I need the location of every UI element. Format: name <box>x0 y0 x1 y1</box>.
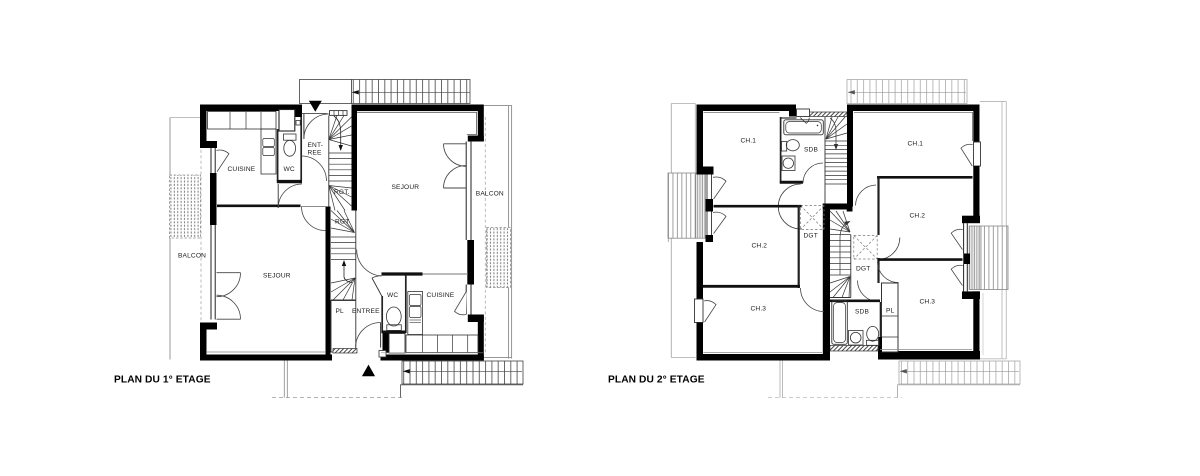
svg-text:ENT-: ENT- <box>308 142 324 149</box>
svg-text:WC: WC <box>284 166 295 173</box>
svg-text:WC: WC <box>387 292 398 299</box>
svg-text:SEJOUR: SEJOUR <box>263 272 291 279</box>
svg-text:BALCON: BALCON <box>476 190 504 197</box>
svg-text:CH.1: CH.1 <box>908 140 924 147</box>
svg-text:PLAN DU 2° ETAGE: PLAN DU 2° ETAGE <box>608 375 705 386</box>
svg-text:CH.2: CH.2 <box>910 212 926 219</box>
svg-text:SDB: SDB <box>855 308 869 315</box>
svg-text:PL: PL <box>886 307 895 314</box>
svg-text:BALCON: BALCON <box>178 252 206 259</box>
svg-text:DGT: DGT <box>804 232 818 239</box>
svg-text:RGT: RGT <box>335 219 349 226</box>
svg-text:SEJOUR: SEJOUR <box>392 184 420 191</box>
svg-text:REE: REE <box>308 150 322 157</box>
svg-text:SDB: SDB <box>804 146 818 153</box>
svg-text:DGT: DGT <box>856 265 870 272</box>
svg-text:CH.1: CH.1 <box>741 137 757 144</box>
svg-text:CUISINE: CUISINE <box>427 292 455 299</box>
svg-text:PLAN DU 1° ETAGE: PLAN DU 1° ETAGE <box>114 375 211 386</box>
svg-text:RGT.: RGT. <box>334 189 350 196</box>
svg-text:CH.3: CH.3 <box>751 305 767 312</box>
svg-text:CH.3: CH.3 <box>920 298 936 305</box>
svg-text:CUISINE: CUISINE <box>228 166 256 173</box>
svg-text:PL: PL <box>336 308 345 315</box>
svg-text:CH.2: CH.2 <box>752 242 768 249</box>
svg-text:ENTREE: ENTREE <box>352 308 380 315</box>
